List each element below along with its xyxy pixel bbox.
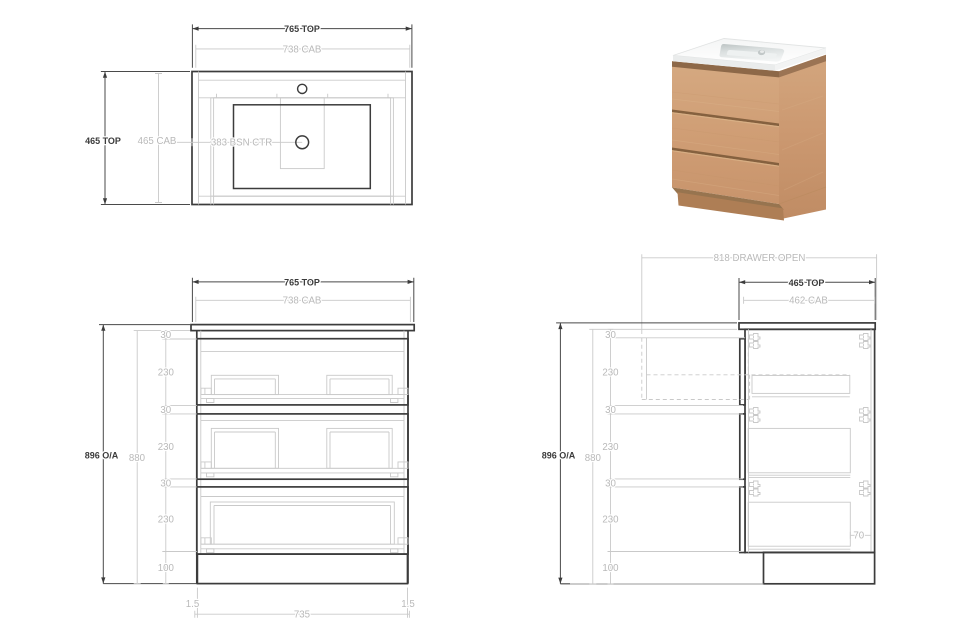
svg-text:230: 230 [158, 515, 175, 526]
svg-text:896 O/A: 896 O/A [542, 450, 576, 460]
svg-text:30: 30 [160, 405, 171, 416]
svg-text:30: 30 [160, 478, 171, 489]
svg-text:230: 230 [158, 368, 175, 379]
svg-text:765 TOP: 765 TOP [284, 24, 320, 34]
svg-text:818 DRAWER OPEN: 818 DRAWER OPEN [714, 253, 806, 264]
svg-text:30: 30 [160, 330, 171, 341]
svg-text:30: 30 [605, 478, 616, 489]
svg-text:100: 100 [158, 563, 175, 574]
svg-text:30: 30 [605, 330, 616, 341]
svg-text:230: 230 [602, 368, 619, 379]
svg-text:465 TOP: 465 TOP [789, 278, 825, 288]
svg-text:880: 880 [129, 453, 146, 464]
svg-text:30: 30 [605, 405, 616, 416]
svg-text:738 CAB: 738 CAB [283, 44, 322, 55]
svg-text:1.5: 1.5 [186, 599, 199, 610]
svg-text:465 TOP: 465 TOP [85, 136, 121, 146]
svg-text:765 TOP: 765 TOP [284, 278, 320, 288]
svg-text:230: 230 [602, 515, 619, 526]
svg-text:100: 100 [602, 563, 619, 574]
svg-text:738 CAB: 738 CAB [283, 296, 322, 307]
svg-text:465 CAB: 465 CAB [138, 136, 177, 147]
svg-text:1.5: 1.5 [401, 599, 414, 610]
svg-text:735: 735 [294, 610, 310, 621]
svg-text:462 CAB: 462 CAB [789, 296, 828, 307]
svg-text:880: 880 [585, 453, 602, 464]
svg-text:70: 70 [853, 531, 864, 542]
svg-text:896 O/A: 896 O/A [85, 450, 119, 460]
svg-text:230: 230 [602, 442, 619, 453]
svg-text:230: 230 [158, 442, 175, 453]
svg-text:383 BSN CTR: 383 BSN CTR [211, 138, 272, 149]
